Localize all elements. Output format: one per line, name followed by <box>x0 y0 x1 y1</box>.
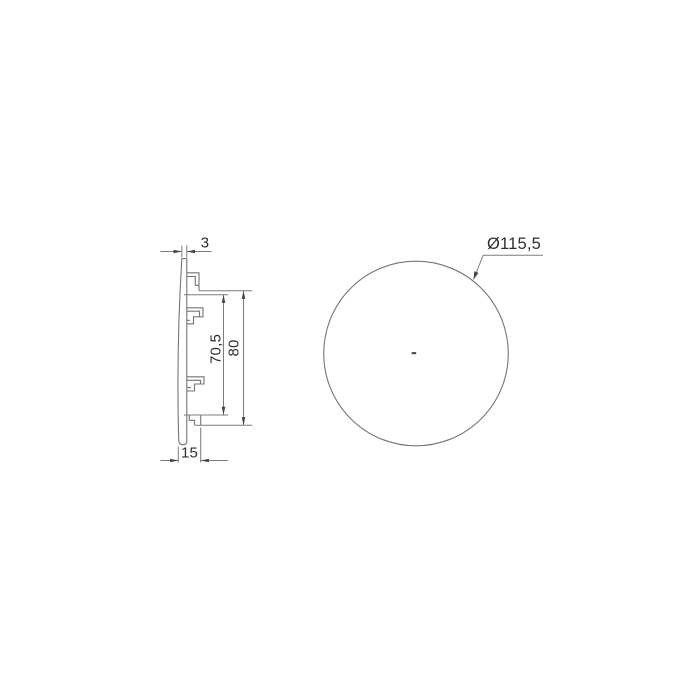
side-view: 3 70,5 80 15 <box>161 235 253 463</box>
side-profile-bottom-hook <box>189 415 200 425</box>
arrow-inner-height-bottom <box>222 407 226 415</box>
arrow-diameter-leader <box>474 271 479 279</box>
dim-label-depth: 15 <box>181 445 198 462</box>
dim-label-diameter: Ø115,5 <box>487 235 541 253</box>
arrow-depth-left <box>170 459 178 463</box>
diameter-leader-line <box>474 255 544 279</box>
arrow-thickness-left <box>174 250 182 254</box>
front-view: Ø115,5 <box>324 235 543 446</box>
side-profile-upper-clip <box>187 308 203 324</box>
arrow-thickness-right <box>187 250 195 254</box>
circle-center-mark <box>412 352 417 354</box>
arrow-inner-height-top <box>222 295 226 303</box>
arrow-outer-height-top <box>242 291 246 299</box>
dim-label-thickness: 3 <box>201 235 210 252</box>
arrow-depth-right <box>201 459 209 463</box>
side-profile-top-hook <box>187 273 199 291</box>
technical-drawing-canvas: 3 70,5 80 15 Ø115,5 <box>0 0 700 700</box>
dim-label-outer-height: 80 <box>226 339 243 356</box>
side-profile-plate <box>178 259 187 445</box>
dim-label-inner-height: 70,5 <box>208 334 225 364</box>
technical-drawing-page: 3 70,5 80 15 Ø115,5 <box>0 0 700 700</box>
arrow-outer-height-bottom <box>242 417 246 425</box>
side-profile-lower-clip <box>187 377 204 391</box>
